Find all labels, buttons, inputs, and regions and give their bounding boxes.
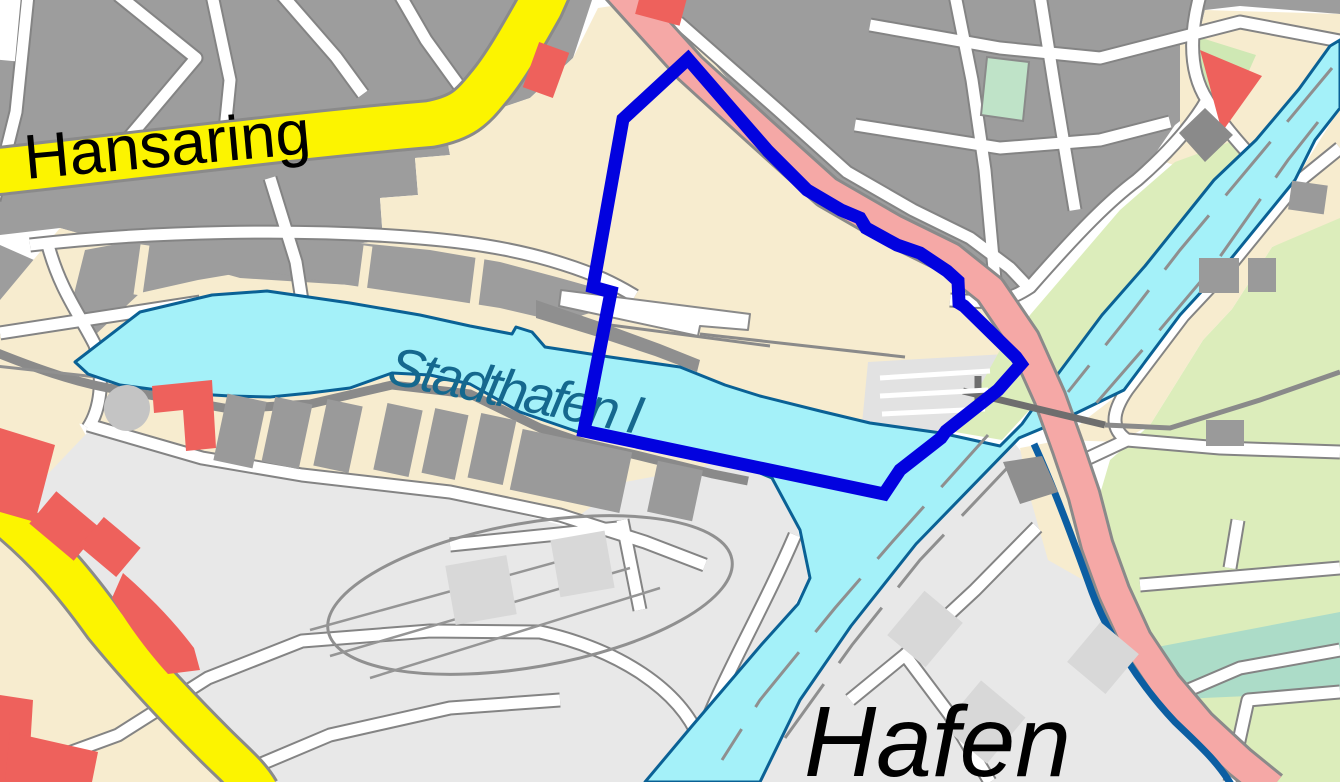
- svg-text:Hafen: Hafen: [804, 686, 1071, 782]
